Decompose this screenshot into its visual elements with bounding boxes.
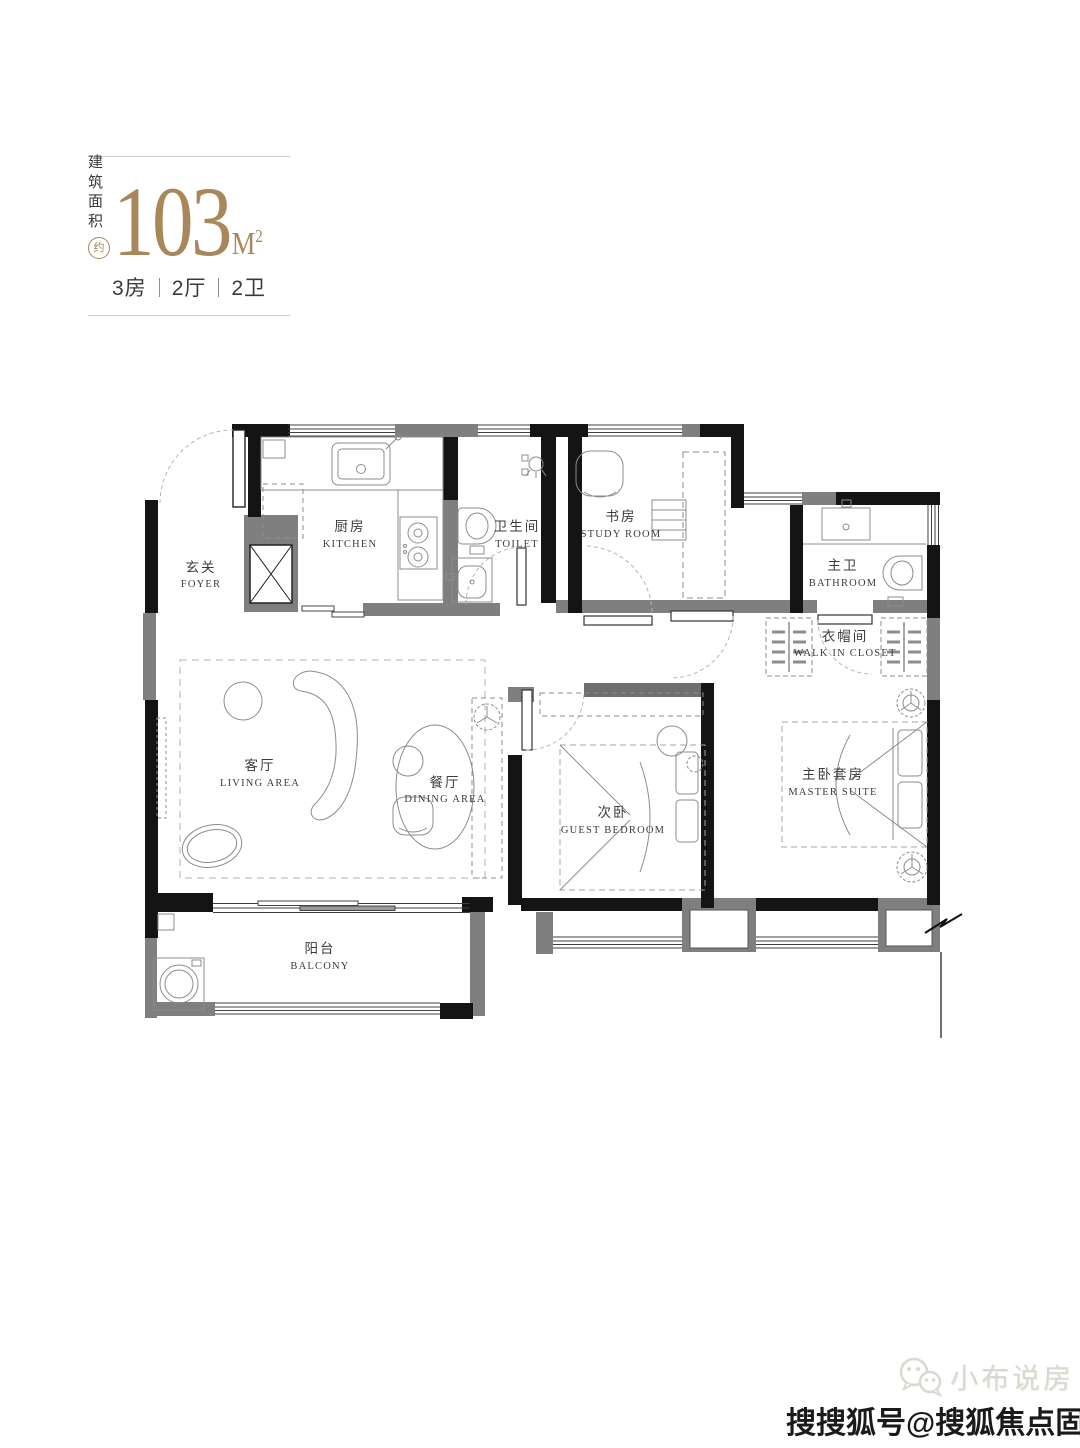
bathroom-door (818, 615, 872, 674)
kitchen-sliding-door (302, 606, 364, 617)
study-chair (576, 451, 623, 497)
svg-text:主卫: 主卫 (828, 558, 859, 573)
kitchen-sink (332, 434, 401, 485)
room-label-foyer: 玄关 FOYER (181, 559, 221, 590)
wechat-icon (898, 1356, 944, 1398)
wechat-watermark: 小布说房 (898, 1356, 1074, 1398)
shaft-box (250, 545, 292, 603)
balcony-sliding-door (213, 901, 470, 913)
svg-text:BATHROOM: BATHROOM (809, 578, 878, 589)
svg-text:TOILET: TOILET (495, 539, 539, 550)
account-watermark: 搜搜狐号@搜狐焦点固安站 (786, 1398, 1080, 1442)
balcony-corner-box (158, 914, 174, 930)
svg-text:次卧: 次卧 (598, 805, 629, 820)
svg-text:衣帽间: 衣帽间 (822, 629, 869, 644)
svg-text:STUDY ROOM: STUDY ROOM (581, 529, 662, 540)
guest-bed (560, 745, 705, 890)
svg-text:FOYER: FOYER (181, 579, 221, 590)
master-door (671, 611, 733, 678)
entry-door (160, 430, 245, 507)
master-bed (782, 722, 927, 847)
svg-text:GUEST BEDROOM: GUEST BEDROOM (561, 825, 665, 836)
study-desk (683, 452, 725, 598)
room-label-toilet: 卫生间 TOILET (494, 519, 541, 550)
study-door (584, 546, 652, 625)
svg-text:BALCONY: BALCONY (290, 961, 349, 972)
svg-text:厨房: 厨房 (335, 519, 366, 534)
svg-text:WALK IN CLOSET: WALK IN CLOSET (793, 648, 896, 659)
bay-window-insets (690, 910, 932, 948)
guest-door (522, 690, 584, 750)
room-label-master-bath: 主卫 BATHROOM (809, 558, 878, 589)
guest-fan-icon (687, 756, 703, 772)
bathroom-wc (883, 556, 922, 606)
room-label-living: 客厅 LIVING AREA (220, 757, 300, 789)
stove (400, 517, 437, 569)
room-label-study: 书房 STUDY ROOM (581, 509, 662, 540)
wardrobe-left (766, 618, 812, 676)
svg-text:餐厅: 餐厅 (430, 775, 461, 790)
toilet-door (466, 547, 526, 605)
room-label-balcony: 阳台 BALCONY (290, 941, 349, 972)
floor-plan-svg: 玄关 FOYER 厨房 KITCHEN 卫生间 TOILET 书房 STUDY … (0, 0, 1080, 1448)
vanity (803, 500, 926, 544)
floorplan-page: 建筑 面积 约 103 M2 3房 2厅 2卫 (0, 0, 1080, 1448)
svg-text:客厅: 客厅 (245, 757, 276, 773)
svg-text:阳台: 阳台 (305, 941, 336, 956)
master-fan-icon-top (897, 689, 925, 717)
svg-text:卫生间: 卫生间 (494, 519, 541, 534)
toilet-wc (458, 508, 496, 554)
master-fan-icon-bottom (897, 852, 927, 882)
tv-console (157, 718, 166, 818)
wechat-watermark-text: 小布说房 (950, 1357, 1074, 1397)
room-label-kitchen: 厨房 KITCHEN (323, 519, 377, 550)
svg-text:玄关: 玄关 (186, 559, 217, 575)
svg-text:MASTER SUITE: MASTER SUITE (788, 787, 877, 798)
svg-text:书房: 书房 (606, 509, 637, 524)
wardrobe-right (881, 618, 927, 676)
svg-text:DINING AREA: DINING AREA (404, 794, 485, 805)
svg-text:主卧套房: 主卧套房 (802, 767, 864, 782)
svg-text:LIVING AREA: LIVING AREA (220, 778, 300, 789)
sideboard (472, 698, 502, 878)
svg-text:KITCHEN: KITCHEN (323, 539, 377, 550)
room-label-master: 主卧套房 MASTER SUITE (788, 767, 877, 798)
